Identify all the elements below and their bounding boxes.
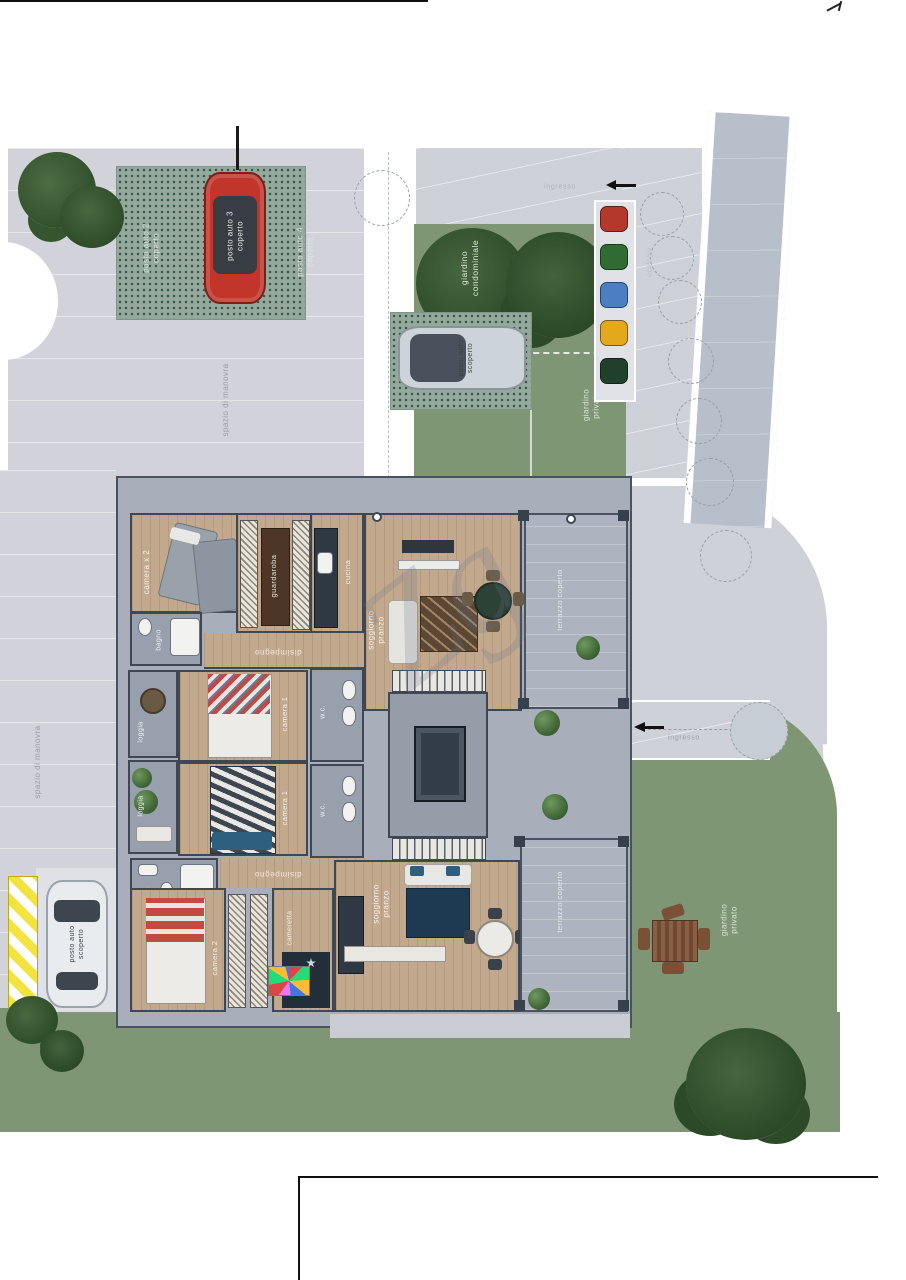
chair-up-1: [462, 592, 473, 606]
planting-circle-3: [658, 280, 702, 324]
wc-up-bidet: [342, 706, 356, 726]
planting-circle-5: [676, 398, 722, 444]
chair-low-3: [488, 908, 502, 919]
entrance-top-arrow: [614, 184, 636, 187]
scan-line-bottom-vert: [298, 1176, 300, 1280]
car-white-glass-front: [54, 900, 100, 922]
walkway-hedge-circle: [730, 702, 788, 760]
tree-garden-br: [686, 1028, 806, 1140]
hall-disimpegno-up: [204, 633, 364, 669]
kitchen-counter-low: [338, 896, 364, 974]
bin-darkgreen: [600, 358, 628, 384]
sink-low: [138, 864, 158, 876]
chair-up-4: [486, 621, 500, 632]
console-up: [398, 560, 460, 570]
wc-up-toilet: [342, 680, 356, 700]
bin-red: [600, 206, 628, 232]
bin-yellow: [600, 320, 628, 346]
terrace-plant-up: [576, 636, 600, 660]
site-plan-scan: posto auto 3 coperto posto auto 2 copert…: [0, 0, 906, 1280]
wardrobe-strip-1: [240, 520, 258, 628]
wc-low-bidet: [342, 802, 356, 822]
car-silver-glass: [410, 334, 466, 382]
terrace-plant-low: [528, 988, 550, 1010]
bin-blue: [600, 282, 628, 308]
bin-green: [600, 244, 628, 270]
courtyard-plant-2: [542, 794, 568, 820]
terrazzo-up: [524, 513, 628, 709]
chair-up-3: [486, 570, 500, 581]
sideboard-up: [402, 540, 454, 553]
sofa-up: [388, 600, 418, 664]
sofa-low-pillow-2: [446, 866, 460, 876]
corner-marker-2: [566, 514, 576, 524]
wc-low-toilet: [342, 776, 356, 796]
planting-circle-4: [668, 338, 714, 384]
shower-up: [170, 618, 200, 656]
column-2: [618, 510, 629, 521]
sofa-low-pillow-1: [410, 866, 424, 876]
planting-circle-driveway: [354, 170, 410, 226]
planting-circle-6: [686, 458, 734, 506]
entrance-mid-arrow: [644, 726, 664, 729]
wardrobe-strip-2: [292, 520, 310, 630]
planting-circle-1: [640, 192, 684, 236]
rug-low: [406, 888, 470, 938]
garden-chair-2: [698, 928, 710, 950]
tree-top-left-2: [60, 186, 124, 248]
front-walk: [330, 1014, 630, 1038]
entrance-mid-arrowhead: [634, 722, 645, 732]
stairs-up: [392, 670, 486, 692]
planting-circle-2: [650, 236, 694, 280]
car-white-glass-rear: [56, 972, 98, 990]
bed-camera2-blanket: [146, 898, 204, 942]
room-loggia-up: [128, 670, 178, 758]
scan-line-top: [0, 0, 428, 2]
terrazzo-low: [520, 838, 628, 1012]
corner-marker-1: [372, 512, 382, 522]
light-pole: [236, 126, 239, 170]
column-6: [618, 836, 629, 847]
chair-low-4: [488, 959, 502, 970]
kitchen-counter-up: [314, 528, 338, 628]
sink-up: [138, 618, 152, 636]
guardaroba-cabinet: [261, 528, 290, 626]
garden-chair-1: [638, 928, 650, 950]
wardrobe-low-1: [228, 894, 246, 1008]
dining-table-low: [476, 920, 514, 958]
chair-low-1: [464, 930, 475, 944]
loggia-low-plant-2: [134, 790, 158, 814]
loggia-up-table: [140, 688, 166, 714]
loggia-low-plant-1: [132, 768, 152, 788]
stairs-low: [392, 838, 486, 860]
wardrobe-low-2: [250, 894, 268, 1008]
column-8: [618, 1000, 629, 1011]
garden-table: [652, 920, 698, 962]
kitchen-sink-up: [317, 552, 333, 574]
entrance-top-arrowhead: [606, 180, 616, 190]
elevator: [414, 726, 466, 802]
car-red-glass: [213, 196, 257, 274]
chair-up-2: [513, 592, 524, 606]
column-4: [618, 698, 629, 709]
bed-camera1-low-throw: [212, 832, 272, 850]
column-1: [518, 510, 529, 521]
column-5: [514, 836, 525, 847]
kitchen-island-low: [344, 946, 446, 962]
column-7: [514, 1000, 525, 1011]
cameretta-color-rug: [268, 966, 310, 996]
garden-chair-4: [662, 962, 684, 974]
bush-left-2: [40, 1030, 84, 1072]
disabled-hatch: [8, 876, 38, 1008]
courtyard-plant-1: [534, 710, 560, 736]
scan-line-bottom: [298, 1176, 878, 1178]
loggia-low-bench: [136, 826, 172, 842]
column-3: [518, 698, 529, 709]
planting-circle-7: [700, 530, 752, 582]
bed-camera1-up-blanket: [208, 674, 270, 714]
dining-table-up: [474, 582, 512, 620]
